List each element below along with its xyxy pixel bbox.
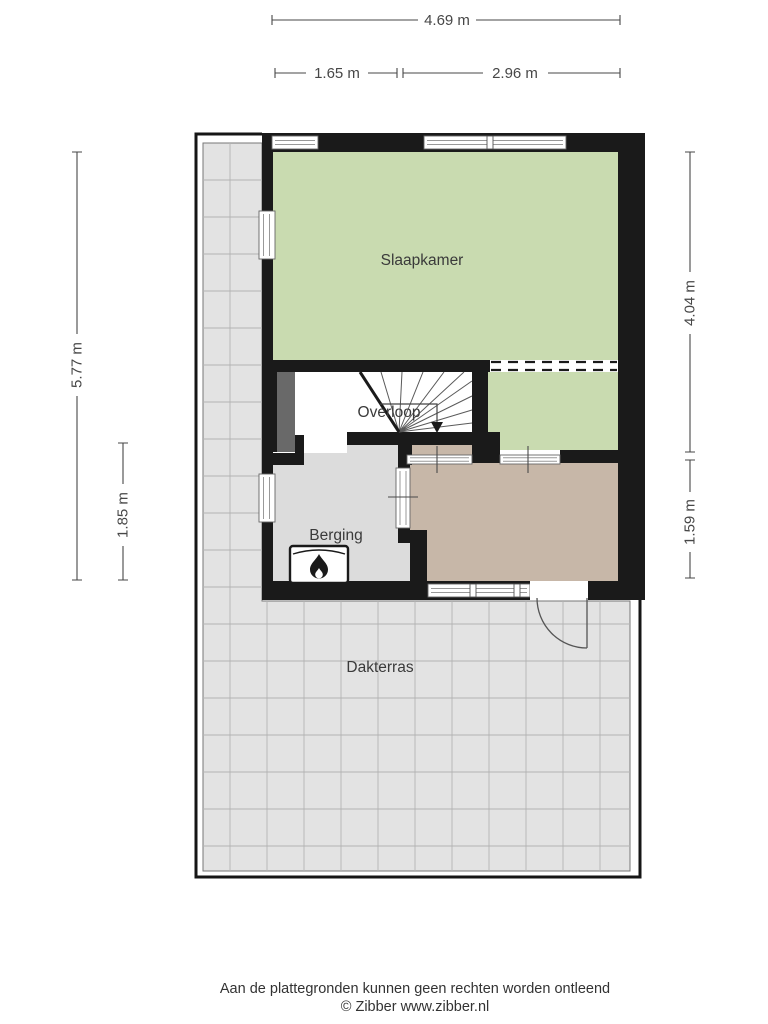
wall-chimney-bottom <box>273 453 304 465</box>
room-label-slaapkamer: Slaapkamer <box>381 252 464 269</box>
footer-disclaimer: Aan de plattegronden kunnen geen rechten… <box>220 981 610 997</box>
dashed-opening <box>490 360 618 372</box>
dim-text-top-total: 4.69 m <box>424 12 470 29</box>
dim-text-right-upper: 4.04 m <box>682 280 699 326</box>
dim-text-top-left: 1.65 m <box>314 65 360 82</box>
heater-unit <box>290 546 348 583</box>
floorplan-drawing: Slaapkamer Overloop Berging Dakterras 4.… <box>0 0 768 1024</box>
room-label-dakterras: Dakterras <box>346 659 413 676</box>
wall-corner-chunk <box>472 445 500 463</box>
wall-bedroom-south <box>273 360 490 372</box>
window-top-right <box>424 136 566 149</box>
window-left-upper <box>259 211 275 259</box>
room-label-overloop: Overloop <box>358 404 421 421</box>
wall-chimney-left <box>273 372 277 452</box>
chimney-shaft <box>277 372 295 452</box>
hall-floor-notch <box>412 445 472 455</box>
wall-landing-south <box>347 432 500 445</box>
footer-credit: © Zibber www.zibber.nl <box>341 999 490 1015</box>
wall-green-south <box>560 450 618 463</box>
window-bottom <box>428 584 530 597</box>
dim-text-top-right: 2.96 m <box>492 65 538 82</box>
window-top-left <box>272 136 318 149</box>
room-label-berging: Berging <box>309 527 362 544</box>
dim-text-right-lower: 1.59 m <box>682 499 699 545</box>
window-left-lower <box>259 474 275 522</box>
wall-right <box>618 152 645 600</box>
wall-chimney-side <box>295 435 304 453</box>
floorplan-page: Slaapkamer Overloop Berging Dakterras 4.… <box>0 0 768 1024</box>
bedroom-lower-floor <box>488 372 618 450</box>
door-opening <box>530 581 588 600</box>
dim-text-left-segment: 1.85 m <box>115 492 132 538</box>
wall-hall-southwest <box>410 530 427 581</box>
hall-floor <box>410 463 618 581</box>
dim-text-left-total: 5.77 m <box>69 342 86 388</box>
